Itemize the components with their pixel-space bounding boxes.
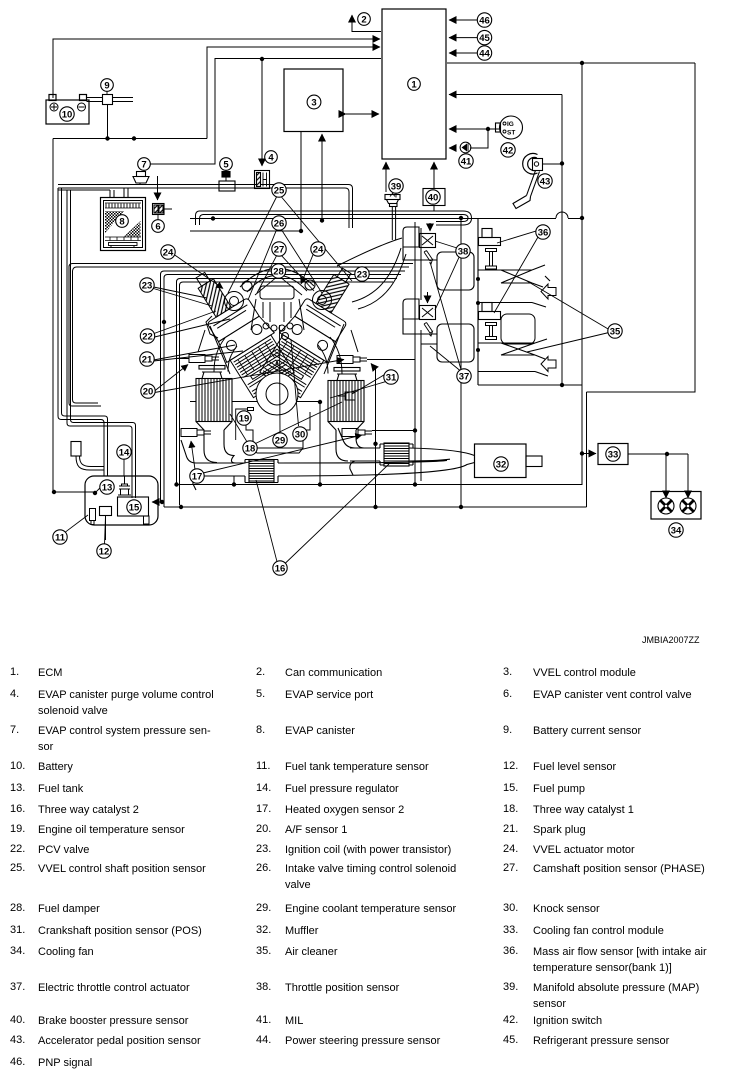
svg-text:10: 10 xyxy=(62,109,73,120)
svg-text:6: 6 xyxy=(155,221,160,232)
svg-text:4: 4 xyxy=(268,152,274,163)
svg-text:9: 9 xyxy=(104,80,109,91)
svg-text:IG: IG xyxy=(507,121,514,128)
svg-text:27: 27 xyxy=(274,244,285,255)
svg-text:30: 30 xyxy=(295,429,306,440)
svg-text:34: 34 xyxy=(671,525,682,536)
svg-text:1: 1 xyxy=(411,79,417,90)
svg-text:2: 2 xyxy=(361,14,366,25)
svg-text:37: 37 xyxy=(459,371,470,382)
svg-text:13: 13 xyxy=(102,482,113,493)
svg-text:46: 46 xyxy=(479,15,490,26)
svg-text:41: 41 xyxy=(461,156,472,167)
svg-text:40: 40 xyxy=(428,192,439,203)
svg-text:24: 24 xyxy=(313,244,324,255)
svg-text:12: 12 xyxy=(99,546,110,557)
svg-text:31: 31 xyxy=(386,372,397,383)
svg-text:33: 33 xyxy=(608,449,619,460)
svg-text:45: 45 xyxy=(479,33,490,44)
svg-text:25: 25 xyxy=(274,185,285,196)
svg-text:29: 29 xyxy=(275,435,286,446)
svg-text:3: 3 xyxy=(311,97,316,108)
svg-text:18: 18 xyxy=(245,443,256,454)
svg-text:19: 19 xyxy=(239,413,250,424)
svg-text:17: 17 xyxy=(192,471,203,482)
svg-text:38: 38 xyxy=(458,246,469,257)
svg-text:32: 32 xyxy=(496,459,507,470)
svg-text:5: 5 xyxy=(223,159,229,170)
svg-text:35: 35 xyxy=(610,326,621,337)
svg-text:26: 26 xyxy=(274,218,285,229)
svg-text:43: 43 xyxy=(540,176,551,187)
svg-text:8: 8 xyxy=(119,216,124,227)
svg-text:44: 44 xyxy=(479,48,490,59)
svg-text:22: 22 xyxy=(142,331,153,342)
svg-text:21: 21 xyxy=(142,354,153,365)
svg-text:23: 23 xyxy=(357,269,368,280)
svg-text:42: 42 xyxy=(503,145,514,156)
svg-text:ST: ST xyxy=(507,130,515,137)
svg-text:15: 15 xyxy=(129,502,140,513)
svg-text:28: 28 xyxy=(273,266,284,277)
svg-text:14: 14 xyxy=(119,447,130,458)
svg-text:39: 39 xyxy=(391,181,402,192)
svg-text:36: 36 xyxy=(538,227,549,238)
svg-text:20: 20 xyxy=(143,386,154,397)
svg-text:11: 11 xyxy=(55,532,66,543)
svg-text:23: 23 xyxy=(142,280,153,291)
svg-text:7: 7 xyxy=(141,159,146,170)
svg-text:16: 16 xyxy=(275,563,286,574)
svg-text:24: 24 xyxy=(163,247,174,258)
